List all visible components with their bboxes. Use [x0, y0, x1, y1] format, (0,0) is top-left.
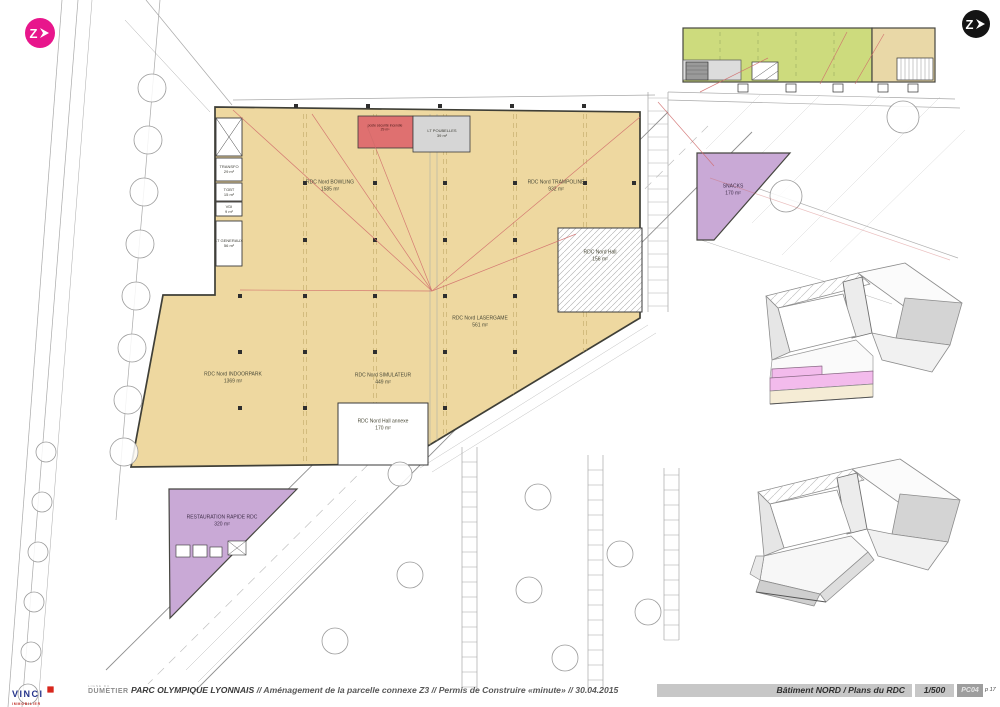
scale-box: 1/500	[915, 684, 954, 697]
room-label-vdi: VDI9 m²	[225, 204, 233, 214]
room-label-trampoline: RDC Nord TRAMPOLINE932 m²	[528, 180, 585, 193]
axon-view-top	[766, 263, 962, 404]
page-number: p 17	[985, 687, 996, 693]
room-label-transfo: TRANSFO29 m²	[219, 164, 238, 174]
drawing-sheet: RDC Nord BOWLING1585 m² RDC Nord TRAMPOL…	[0, 0, 1000, 707]
room-label-restauration: RESTAURATION RAPIDE RDC320 m²	[187, 515, 258, 528]
room-label-tgbt: TGBT15 m²	[224, 187, 235, 197]
title-details: // Aménagement de la parcelle connexe Z3…	[257, 685, 619, 695]
room-hall-annexe	[338, 403, 428, 465]
vinci-diamond-icon	[44, 683, 57, 696]
room-label-bowling: RDC Nord BOWLING1585 m²	[306, 180, 354, 193]
sheet-name: Bâtiment NORD / Plans du RDC	[657, 684, 912, 697]
room-label-lt-poubelles: LT POUBELLES39 m²	[427, 128, 456, 138]
site-plan-drawing	[0, 0, 1000, 707]
vinci-sublabel: IMMOBILIER	[12, 702, 44, 706]
room-label-hall: RDC Nord Hall156 m²	[583, 250, 616, 263]
vinci-wordmark: VINCI	[12, 689, 44, 699]
building-restauration	[169, 489, 297, 618]
room-hall	[558, 228, 642, 312]
building-nord	[131, 104, 642, 468]
room-label-lt-generaux: LT GENERAUX56 m²	[215, 238, 243, 248]
logo-letter: Z	[966, 18, 974, 31]
architect-logo-black: Z	[962, 10, 990, 38]
room-label-simulateur: RDC Nord SIMULATEUR449 m²	[355, 373, 411, 386]
room-label-lasergame: RDC Nord LASERGAME561 m²	[452, 316, 508, 329]
vinci-logo: VINCI IMMOBILIER	[12, 684, 55, 706]
arrow-bird-icon	[974, 18, 986, 30]
title-block: VINCI IMMOBILIER LIGNE DU DUMETIER PARC …	[0, 683, 1000, 700]
vent-markers	[294, 104, 586, 108]
logo-letter: Z	[30, 27, 38, 40]
dumetier-logo: LIGNE DU DUMETIER	[88, 684, 129, 695]
room-label-hall-annexe: RDC Nord Hall annexe170 m²	[358, 419, 409, 432]
doc-code-badge: PC04	[957, 684, 983, 697]
project-name: PARC OLYMPIQUE LYONNAIS	[131, 685, 254, 695]
room-label-indoorpark: RDC Nord INDOORPARK1369 m²	[204, 372, 262, 385]
arrow-bird-icon	[38, 27, 50, 39]
building-top-right	[683, 28, 935, 92]
axon-view-bottom	[750, 459, 960, 606]
sheet-title: PARC OLYMPIQUE LYONNAIS // Aménagement d…	[131, 685, 618, 695]
room-label-poste-securite: poste sécurité incendie29 m²	[368, 124, 403, 133]
architect-logo-pink: Z	[25, 18, 55, 48]
room-label-snacks: SNACKS170 m²	[723, 184, 744, 197]
